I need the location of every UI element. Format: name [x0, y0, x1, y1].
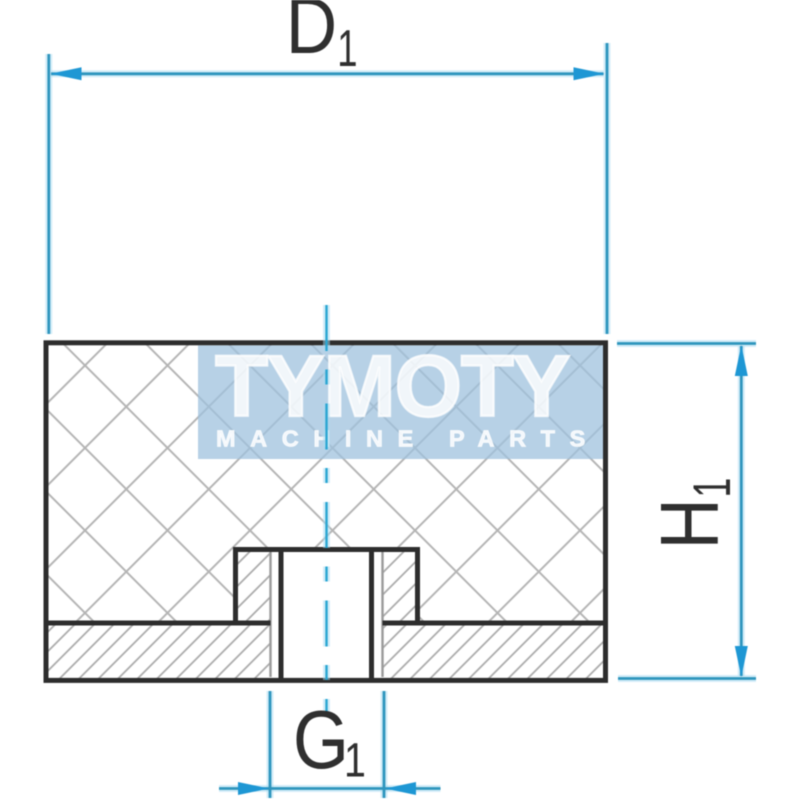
- svg-text:TYMOTY: TYMOTY: [215, 338, 569, 435]
- svg-text:1: 1: [337, 18, 357, 77]
- svg-text:D: D: [286, 0, 337, 71]
- svg-text:G: G: [293, 694, 349, 786]
- svg-text:1: 1: [682, 478, 742, 498]
- svg-text:H: H: [644, 498, 736, 549]
- svg-text:MACHINE PARTS: MACHINE PARTS: [216, 426, 600, 452]
- svg-text:1: 1: [344, 734, 366, 788]
